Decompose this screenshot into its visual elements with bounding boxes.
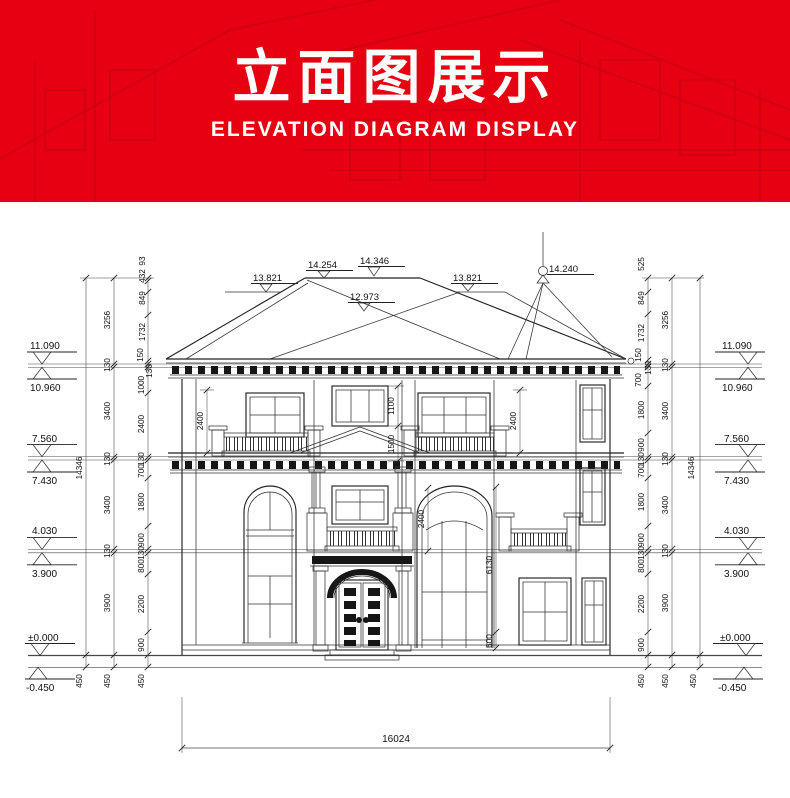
level-label: 10.960: [722, 383, 753, 394]
dim-label: 450: [75, 674, 84, 688]
roof-mark-label: 14.346: [360, 256, 389, 267]
level-label: 7.430: [724, 476, 749, 487]
dim-label: 1800: [637, 400, 646, 419]
left-mid-dims: 3256 130 3400 130 3400 130 3900: [103, 310, 112, 612]
level-label: 7.430: [32, 476, 57, 487]
balcony-3l: [209, 426, 323, 456]
door-pilaster-right: [396, 566, 411, 651]
elevation-markers-left: 11.090 10.960 7.560 7.430 4.030 3.900 ±0…: [25, 341, 77, 694]
dim-label: 3900: [103, 593, 112, 612]
roof-mark-label: 13.821: [453, 273, 482, 284]
dim-label: 2400: [137, 414, 146, 433]
dim-label: 3400: [103, 401, 112, 420]
dim-label: 900: [637, 533, 646, 547]
elevation-markers-right: 11.090 10.960 7.560 7.430 4.030 3.900 ±0…: [713, 341, 765, 694]
dim-label: 130: [137, 546, 146, 560]
level-label: ±0.000: [720, 633, 751, 644]
window-1r: [519, 578, 571, 645]
arched-window-left: [242, 486, 298, 643]
dim-label: 3256: [661, 310, 670, 329]
balcony-3r: [401, 426, 509, 456]
dim-label: 900: [137, 533, 146, 547]
dim-label: 6130: [485, 555, 494, 574]
floor-1: [310, 556, 606, 660]
level-label: 7.560: [32, 434, 57, 445]
dim-label: 3400: [103, 495, 112, 514]
level-label: 11.090: [30, 341, 60, 352]
dim-label: 900: [637, 638, 646, 652]
dim-label: 450: [689, 674, 698, 688]
dim-label: 450: [103, 674, 112, 688]
dim-label: 130: [661, 544, 670, 558]
dim-label: 1100: [387, 397, 396, 415]
door-entablature: [312, 556, 412, 564]
dim-label: 700: [637, 464, 646, 478]
right-450s: 450 450 450: [637, 674, 698, 688]
level-label: 4.030: [32, 526, 57, 537]
window-3c: [332, 386, 388, 426]
roof-mark-label: 14.254: [308, 260, 337, 271]
window-3s: [580, 385, 605, 442]
level-label: 3.900: [32, 569, 57, 580]
window-2c: [332, 486, 388, 524]
roof-mark-label: 12.973: [350, 292, 379, 303]
dim-label: 700: [634, 373, 643, 387]
balcony-2r: [496, 513, 582, 551]
level-label: -0.450: [718, 683, 747, 694]
dentil-row-top: [172, 366, 620, 374]
entry-door: [325, 580, 399, 660]
dim-label: 3900: [661, 593, 670, 612]
level-label: 4.030: [724, 526, 749, 537]
banner-title: 立面图展示: [0, 46, 790, 110]
dim-label: 1800: [137, 492, 146, 511]
banner-subtitle: ELEVATION DIAGRAM DISPLAY: [0, 118, 790, 142]
porch-hip-roof: [290, 427, 430, 453]
level-label: ±0.000: [28, 633, 59, 644]
dentil-row-mid: [172, 461, 620, 469]
dim-label: 3400: [661, 401, 670, 420]
dim-label: 600: [485, 634, 494, 648]
dim-label: 93: [138, 256, 147, 266]
dim-total-left: 14346: [75, 456, 84, 479]
floor-2: [242, 467, 605, 648]
dim-label: 1800: [637, 492, 646, 511]
dim-label: 1000: [137, 375, 146, 394]
roof-mark-label: 14.240: [549, 264, 578, 275]
dim-label: 450: [637, 674, 646, 688]
dim-label: 130: [661, 452, 670, 466]
dim-label: 450: [661, 674, 670, 688]
dim-label: 3400: [661, 495, 670, 514]
dim-label: 150: [634, 348, 643, 362]
right-mid-dims: 3256 130 3400 130 3400 130 3900: [661, 310, 670, 612]
dim-label: 2200: [637, 594, 646, 613]
dim-label: 2200: [137, 594, 146, 613]
dim-label: 1732: [138, 322, 147, 341]
dim-label: 800: [137, 559, 146, 573]
window-1s: [582, 578, 606, 645]
level-label: 11.090: [722, 341, 752, 352]
dim-label: 130: [103, 544, 112, 558]
floor-3: [209, 385, 605, 456]
dim-label: 900: [137, 638, 146, 652]
dim-label: 432: [138, 269, 147, 283]
dim-label: 849: [637, 291, 646, 305]
dim-label: 130: [103, 358, 112, 372]
dim-label: 150: [136, 348, 145, 362]
level-label: 3.900: [724, 569, 749, 580]
roof: [166, 232, 634, 378]
dim-label: 849: [138, 291, 147, 305]
dim-label: 1500: [387, 434, 396, 453]
banner: 立面图展示 ELEVATION DIAGRAM DISPLAY: [0, 0, 790, 202]
dim-label: 1732: [637, 323, 646, 342]
dim-label: 2400: [196, 411, 205, 430]
dim-label: 130: [644, 361, 653, 375]
window-2s: [580, 468, 605, 525]
dim-label: 130: [145, 364, 154, 378]
left-450s: 450 450 450: [75, 674, 146, 688]
balcony-2c: [325, 527, 399, 551]
dim-label: 130: [637, 452, 646, 466]
width-dim-label: 16024: [382, 734, 410, 745]
dim-label: 130: [103, 452, 112, 466]
roof-mark-label: 13.821: [253, 273, 282, 284]
dim-label: 130: [637, 546, 646, 560]
dim-label: 800: [637, 559, 646, 573]
level-label: 7.560: [724, 434, 749, 445]
dim-label: 2400: [509, 411, 518, 430]
dim-label: 450: [137, 674, 146, 688]
dim-label: 525: [637, 257, 646, 271]
level-label: -0.450: [26, 683, 55, 694]
dim-label: 130: [661, 358, 670, 372]
porch-column-left: [307, 467, 327, 551]
finial-ball: [539, 267, 548, 276]
door-step-1: [330, 650, 394, 655]
dim-label: 3256: [103, 310, 112, 329]
dim-label: 2400: [417, 509, 426, 528]
dim-label: 130: [137, 452, 146, 466]
dim-total-right: 14346: [687, 456, 696, 479]
dim-label: 700: [137, 464, 146, 478]
door-pilaster-left: [313, 566, 328, 651]
level-label: 10.960: [30, 383, 61, 394]
dim-label: 900: [637, 438, 646, 452]
